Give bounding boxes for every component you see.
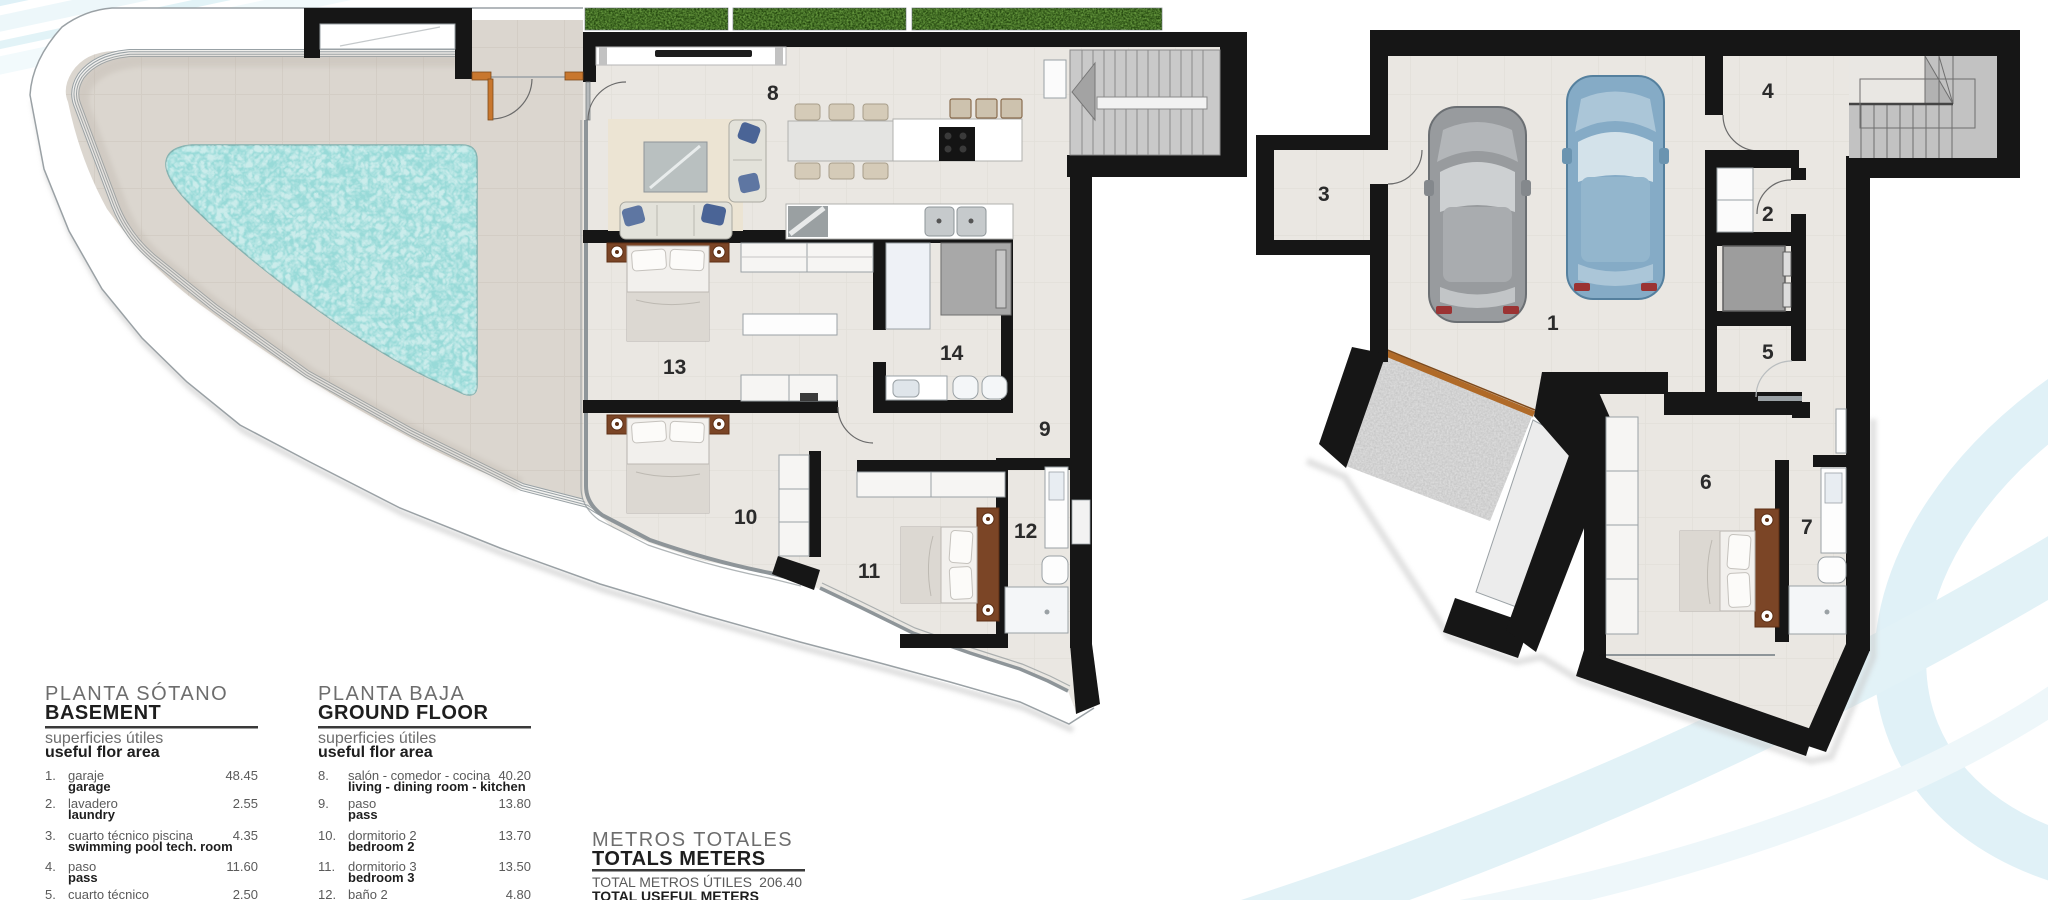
- svg-text:useful flor area: useful flor area: [45, 744, 160, 761]
- svg-text:2.: 2.: [45, 796, 56, 811]
- svg-text:BASEMENT: BASEMENT: [45, 702, 161, 724]
- svg-text:3.: 3.: [45, 828, 56, 843]
- svg-text:11.: 11.: [318, 859, 335, 874]
- svg-text:13.70: 13.70: [498, 828, 531, 843]
- svg-text:10: 10: [734, 506, 757, 529]
- svg-text:TOTAL USEFUL METERS: TOTAL USEFUL METERS: [592, 888, 759, 900]
- svg-text:9.: 9.: [318, 796, 329, 811]
- svg-text:swimming pool tech. room: swimming pool tech. room: [68, 839, 233, 854]
- svg-text:2.50: 2.50: [233, 887, 258, 900]
- svg-text:bedroom 3: bedroom 3: [348, 870, 414, 885]
- svg-text:13.80: 13.80: [498, 796, 531, 811]
- svg-text:5: 5: [1762, 341, 1774, 364]
- svg-text:12: 12: [1014, 520, 1037, 543]
- svg-text:4.80: 4.80: [506, 887, 531, 900]
- svg-text:useful flor area: useful flor area: [318, 744, 433, 761]
- svg-text:12.: 12.: [318, 887, 336, 900]
- svg-text:2.55: 2.55: [233, 796, 258, 811]
- svg-text:11.60: 11.60: [226, 859, 258, 874]
- svg-text:pass: pass: [68, 870, 98, 885]
- svg-text:3: 3: [1318, 183, 1330, 206]
- svg-text:9: 9: [1039, 418, 1051, 441]
- svg-text:206.40: 206.40: [759, 874, 802, 890]
- svg-text:4: 4: [1762, 80, 1774, 103]
- svg-text:13: 13: [663, 356, 686, 379]
- svg-text:8: 8: [767, 82, 779, 105]
- svg-text:TOTALS METERS: TOTALS METERS: [592, 848, 766, 870]
- svg-text:2: 2: [1762, 203, 1774, 226]
- svg-text:garage: garage: [68, 779, 111, 794]
- svg-text:7: 7: [1801, 516, 1813, 539]
- svg-text:11: 11: [858, 560, 881, 583]
- svg-text:10.: 10.: [318, 828, 336, 843]
- svg-text:1: 1: [1547, 312, 1559, 335]
- svg-text:living - dining room - kitchen: living - dining room - kitchen: [348, 779, 526, 794]
- svg-text:GROUND FLOOR: GROUND FLOOR: [318, 702, 488, 724]
- svg-text:bedroom 2: bedroom 2: [348, 839, 414, 854]
- svg-text:laundry: laundry: [68, 807, 116, 822]
- svg-text:8.: 8.: [318, 768, 329, 783]
- svg-text:5.: 5.: [45, 887, 56, 900]
- svg-text:13.50: 13.50: [498, 859, 531, 874]
- svg-text:6: 6: [1700, 471, 1712, 494]
- svg-text:4.: 4.: [45, 859, 56, 874]
- svg-text:1.: 1.: [45, 768, 56, 783]
- svg-text:pass: pass: [348, 807, 378, 822]
- svg-text:14: 14: [940, 342, 964, 365]
- svg-text:48.45: 48.45: [225, 768, 258, 783]
- svg-text:4.35: 4.35: [233, 828, 258, 843]
